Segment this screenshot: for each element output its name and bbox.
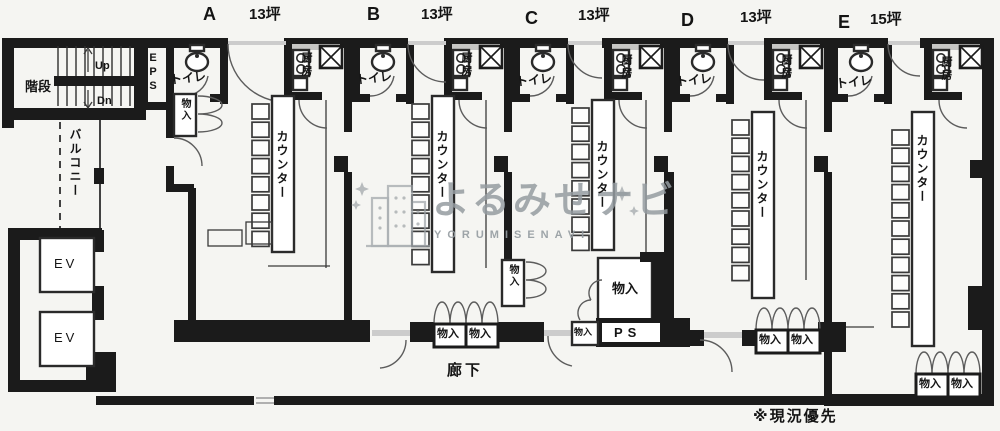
unit-label-c: C — [525, 9, 539, 27]
toilet-label-c: トイレ — [515, 72, 552, 88]
watermark-subtitle: YORUMISENAVI — [434, 230, 590, 241]
watermark-title: よるみせナビ — [432, 182, 677, 220]
unit-label-b: B — [367, 5, 381, 23]
closet-label-e1: 物入 — [919, 379, 941, 390]
counter-label-c: カウンター — [596, 140, 608, 255]
closet-label-e2: 物入 — [951, 379, 973, 390]
unit-area-c: 13坪 — [578, 8, 610, 23]
unit-label-a: A — [203, 5, 217, 23]
closet-label-b2: 物入 — [469, 329, 491, 340]
counter-label-d: カウンター — [756, 150, 768, 265]
unit-area-e: 15坪 — [870, 12, 902, 27]
unit-label-e: E — [838, 13, 851, 31]
counter-label-e: カウンター — [916, 134, 928, 249]
floor-plan: よるみせナビ YORUMISENAVI A 13坪 B 13坪 C 13坪 D … — [0, 0, 1000, 431]
note-label: ※現況優先 — [753, 409, 838, 424]
closet-pair-d — [756, 308, 820, 353]
toilet-label-a: トイレ — [169, 70, 206, 86]
kitchen-label-a: 厨房 — [300, 52, 311, 92]
corridor-label: 廊下 — [447, 363, 483, 378]
elevator-label-1: EV — [54, 257, 77, 270]
balcony-outline — [60, 120, 104, 230]
storage-label-c-big: 物入 — [612, 282, 638, 295]
storage-label-c-small: 物入 — [574, 328, 592, 337]
closet-pair-e — [916, 352, 980, 397]
toilet-label-d: トイレ — [675, 72, 712, 88]
counter-label-b: カウンター — [436, 130, 448, 245]
stairs-label: 階段 — [25, 80, 51, 93]
closet-pair-b — [434, 302, 498, 347]
storage-label-bc: 物入 — [507, 264, 517, 304]
balcony-label: バルコニー — [69, 128, 81, 232]
unit-area-a: 13坪 — [249, 7, 281, 22]
toilet-label-b: トイレ — [355, 70, 392, 86]
stairs-dn-label: Dn — [97, 96, 112, 107]
elevator-shaft — [8, 228, 116, 392]
stairwell — [2, 40, 146, 120]
ps-label: PS — [614, 326, 641, 339]
closet-label-d1: 物入 — [759, 335, 781, 346]
unit-area-d: 13坪 — [740, 10, 772, 25]
kitchen-label-e: 厨房 — [940, 56, 951, 96]
stairs-up-label: Up — [95, 61, 110, 72]
toilet-label-e: トイレ — [835, 74, 872, 90]
closet-label-d2: 物入 — [791, 335, 813, 346]
elevator-label-2: EV — [54, 331, 77, 344]
counter-label-a: カウンター — [276, 130, 288, 245]
unit-label-d: D — [681, 11, 695, 29]
closet-label-b1: 物入 — [437, 329, 459, 340]
kitchen-label-d: 厨房 — [780, 54, 791, 94]
kitchen-label-c: 厨房 — [620, 54, 631, 94]
kitchen-label-b: 厨房 — [460, 52, 471, 92]
eps-label: EPS — [147, 52, 158, 104]
unit-area-b: 13坪 — [421, 7, 453, 22]
storage-label-a: 物入 — [179, 98, 189, 134]
counter-a — [208, 96, 330, 266]
